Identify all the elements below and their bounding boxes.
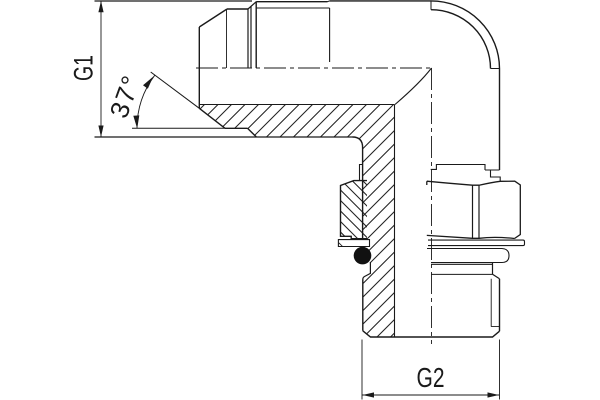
svg-text:G2: G2: [417, 362, 445, 393]
svg-text:G1: G1: [69, 55, 99, 81]
